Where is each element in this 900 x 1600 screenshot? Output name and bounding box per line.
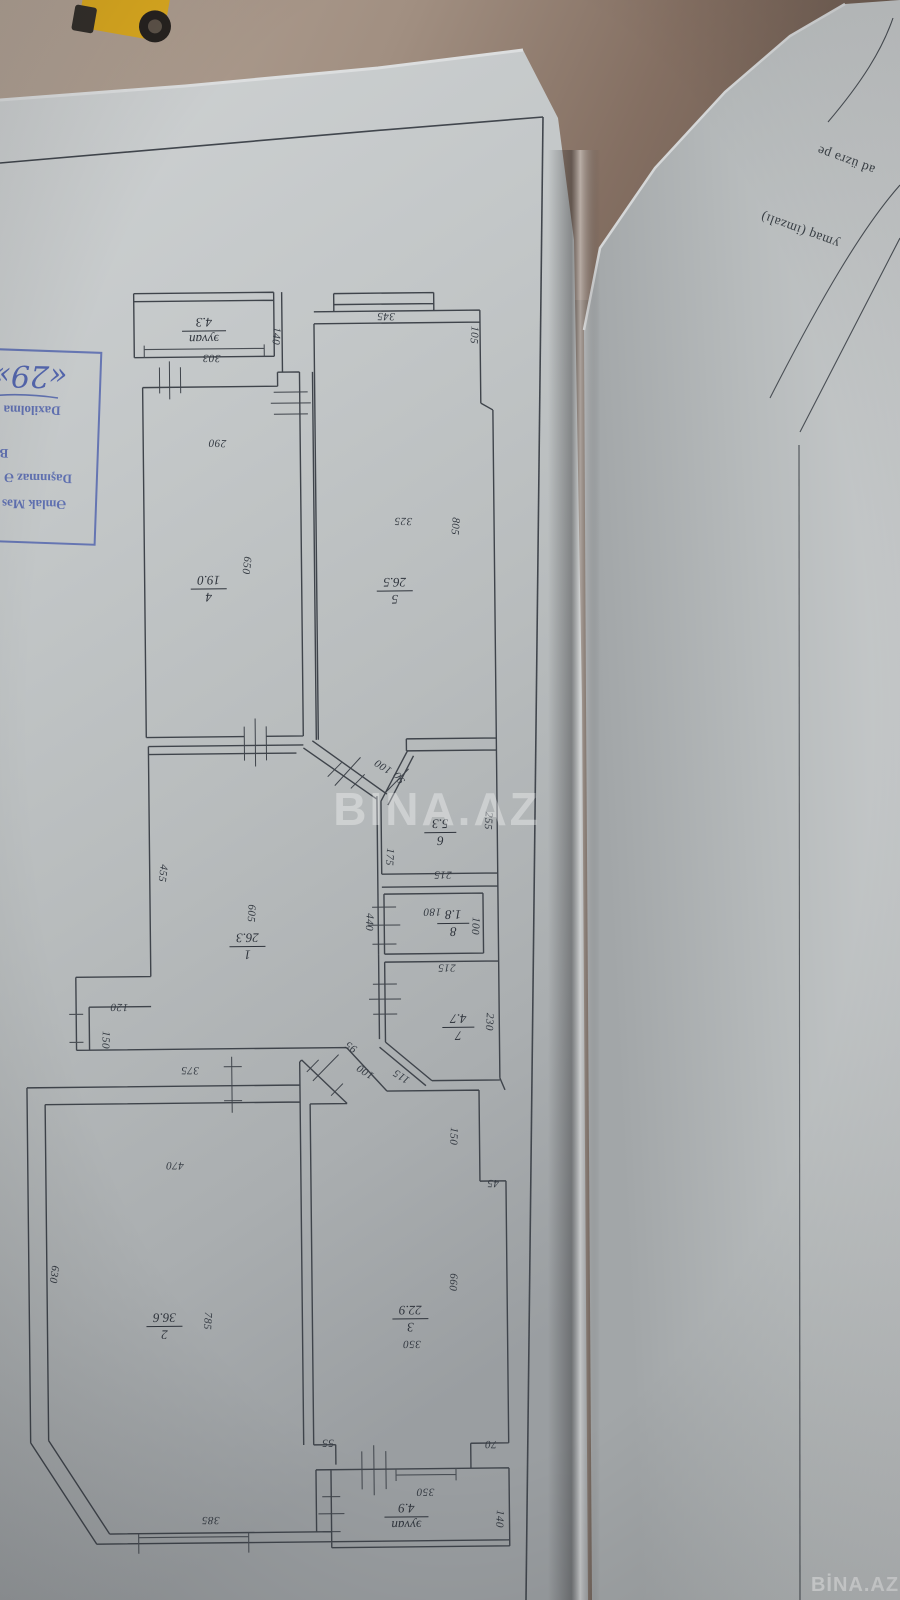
dim-label: 45 [487,1177,499,1189]
dim-label: 175 [383,848,396,867]
dim-label: 70 [485,1438,497,1450]
dim-label: 440 [363,913,376,932]
dim-label: 385 [201,1514,220,1526]
room-number: 2 [161,1327,168,1342]
room-area: 22.9 [398,1303,421,1318]
page-seam-shadow [548,150,600,1600]
dim-label: 375 [181,1064,200,1076]
dim-label: 805 [448,517,461,536]
room-area: 1.8 [444,907,461,922]
dim-label: 140 [269,327,282,346]
dim-label: 180 [423,906,441,918]
dim-label: 325 [394,515,413,527]
room-area: 26.3 [235,930,258,945]
dim-label: 605 [245,904,258,923]
room-area: 4.3 [195,315,212,330]
stamp-handwritten-number: «29» [0,357,68,393]
stamp-line: Daxilolma [3,402,61,418]
stamp-line: Əmlak Məs [2,496,66,512]
room-area: 4.9 [398,1501,415,1516]
dim-label: 303 [202,352,221,364]
room-area: 19.0 [197,573,220,588]
floorplan-photo: ad üzrə pe ymaq (imzalı) «29» Daxilolma … [0,0,900,1600]
room-number: эyvan [391,1518,421,1533]
room-number: эyvan [189,332,219,347]
dim-label: 120 [110,1001,128,1013]
dim-label: 215 [434,868,452,880]
floorplan-photo-svg: ad üzrə pe ymaq (imzalı) «29» Daxilolma … [0,0,900,1600]
room-number: 1 [244,948,251,963]
room-area: 36.6 [152,1310,176,1325]
room-area: 4.7 [450,1011,467,1026]
watermark-corner: BİNA.AZ [811,1573,899,1596]
stamp-line: B [0,446,8,461]
dim-label: 660 [446,1273,459,1292]
side-page-sheet [584,0,900,1600]
dim-label: 345 [377,310,396,322]
room-number: 6 [437,833,444,848]
room-number: 4 [205,590,212,605]
toy-cab [71,4,97,33]
room-number: 3 [407,1320,415,1335]
dim-label: 105 [467,326,480,345]
dim-label: 230 [483,1013,496,1032]
watermark-center: BINA.AZ [333,783,541,835]
stamp-line: Daşınmaz Ə [4,470,72,486]
room-number: 5 [391,592,398,607]
dim-label: 150 [99,1031,112,1049]
dim-label: 290 [208,437,226,449]
dim-label: 55 [322,1437,334,1449]
dim-label: 470 [166,1159,184,1171]
dim-label: 350 [403,1338,422,1350]
room-area: 26.5 [383,575,406,590]
dim-label: 350 [416,1486,435,1498]
dim-label: 785 [201,1312,214,1331]
dim-label: 455 [156,864,170,883]
room-number: 7 [455,1028,462,1043]
dim-label: 150 [447,1127,460,1146]
dim-label: 215 [438,961,456,973]
room-number: 8 [450,924,457,939]
dim-label: 650 [240,556,254,575]
dim-label: 140 [493,1510,506,1529]
dim-label: 100 [469,917,482,936]
